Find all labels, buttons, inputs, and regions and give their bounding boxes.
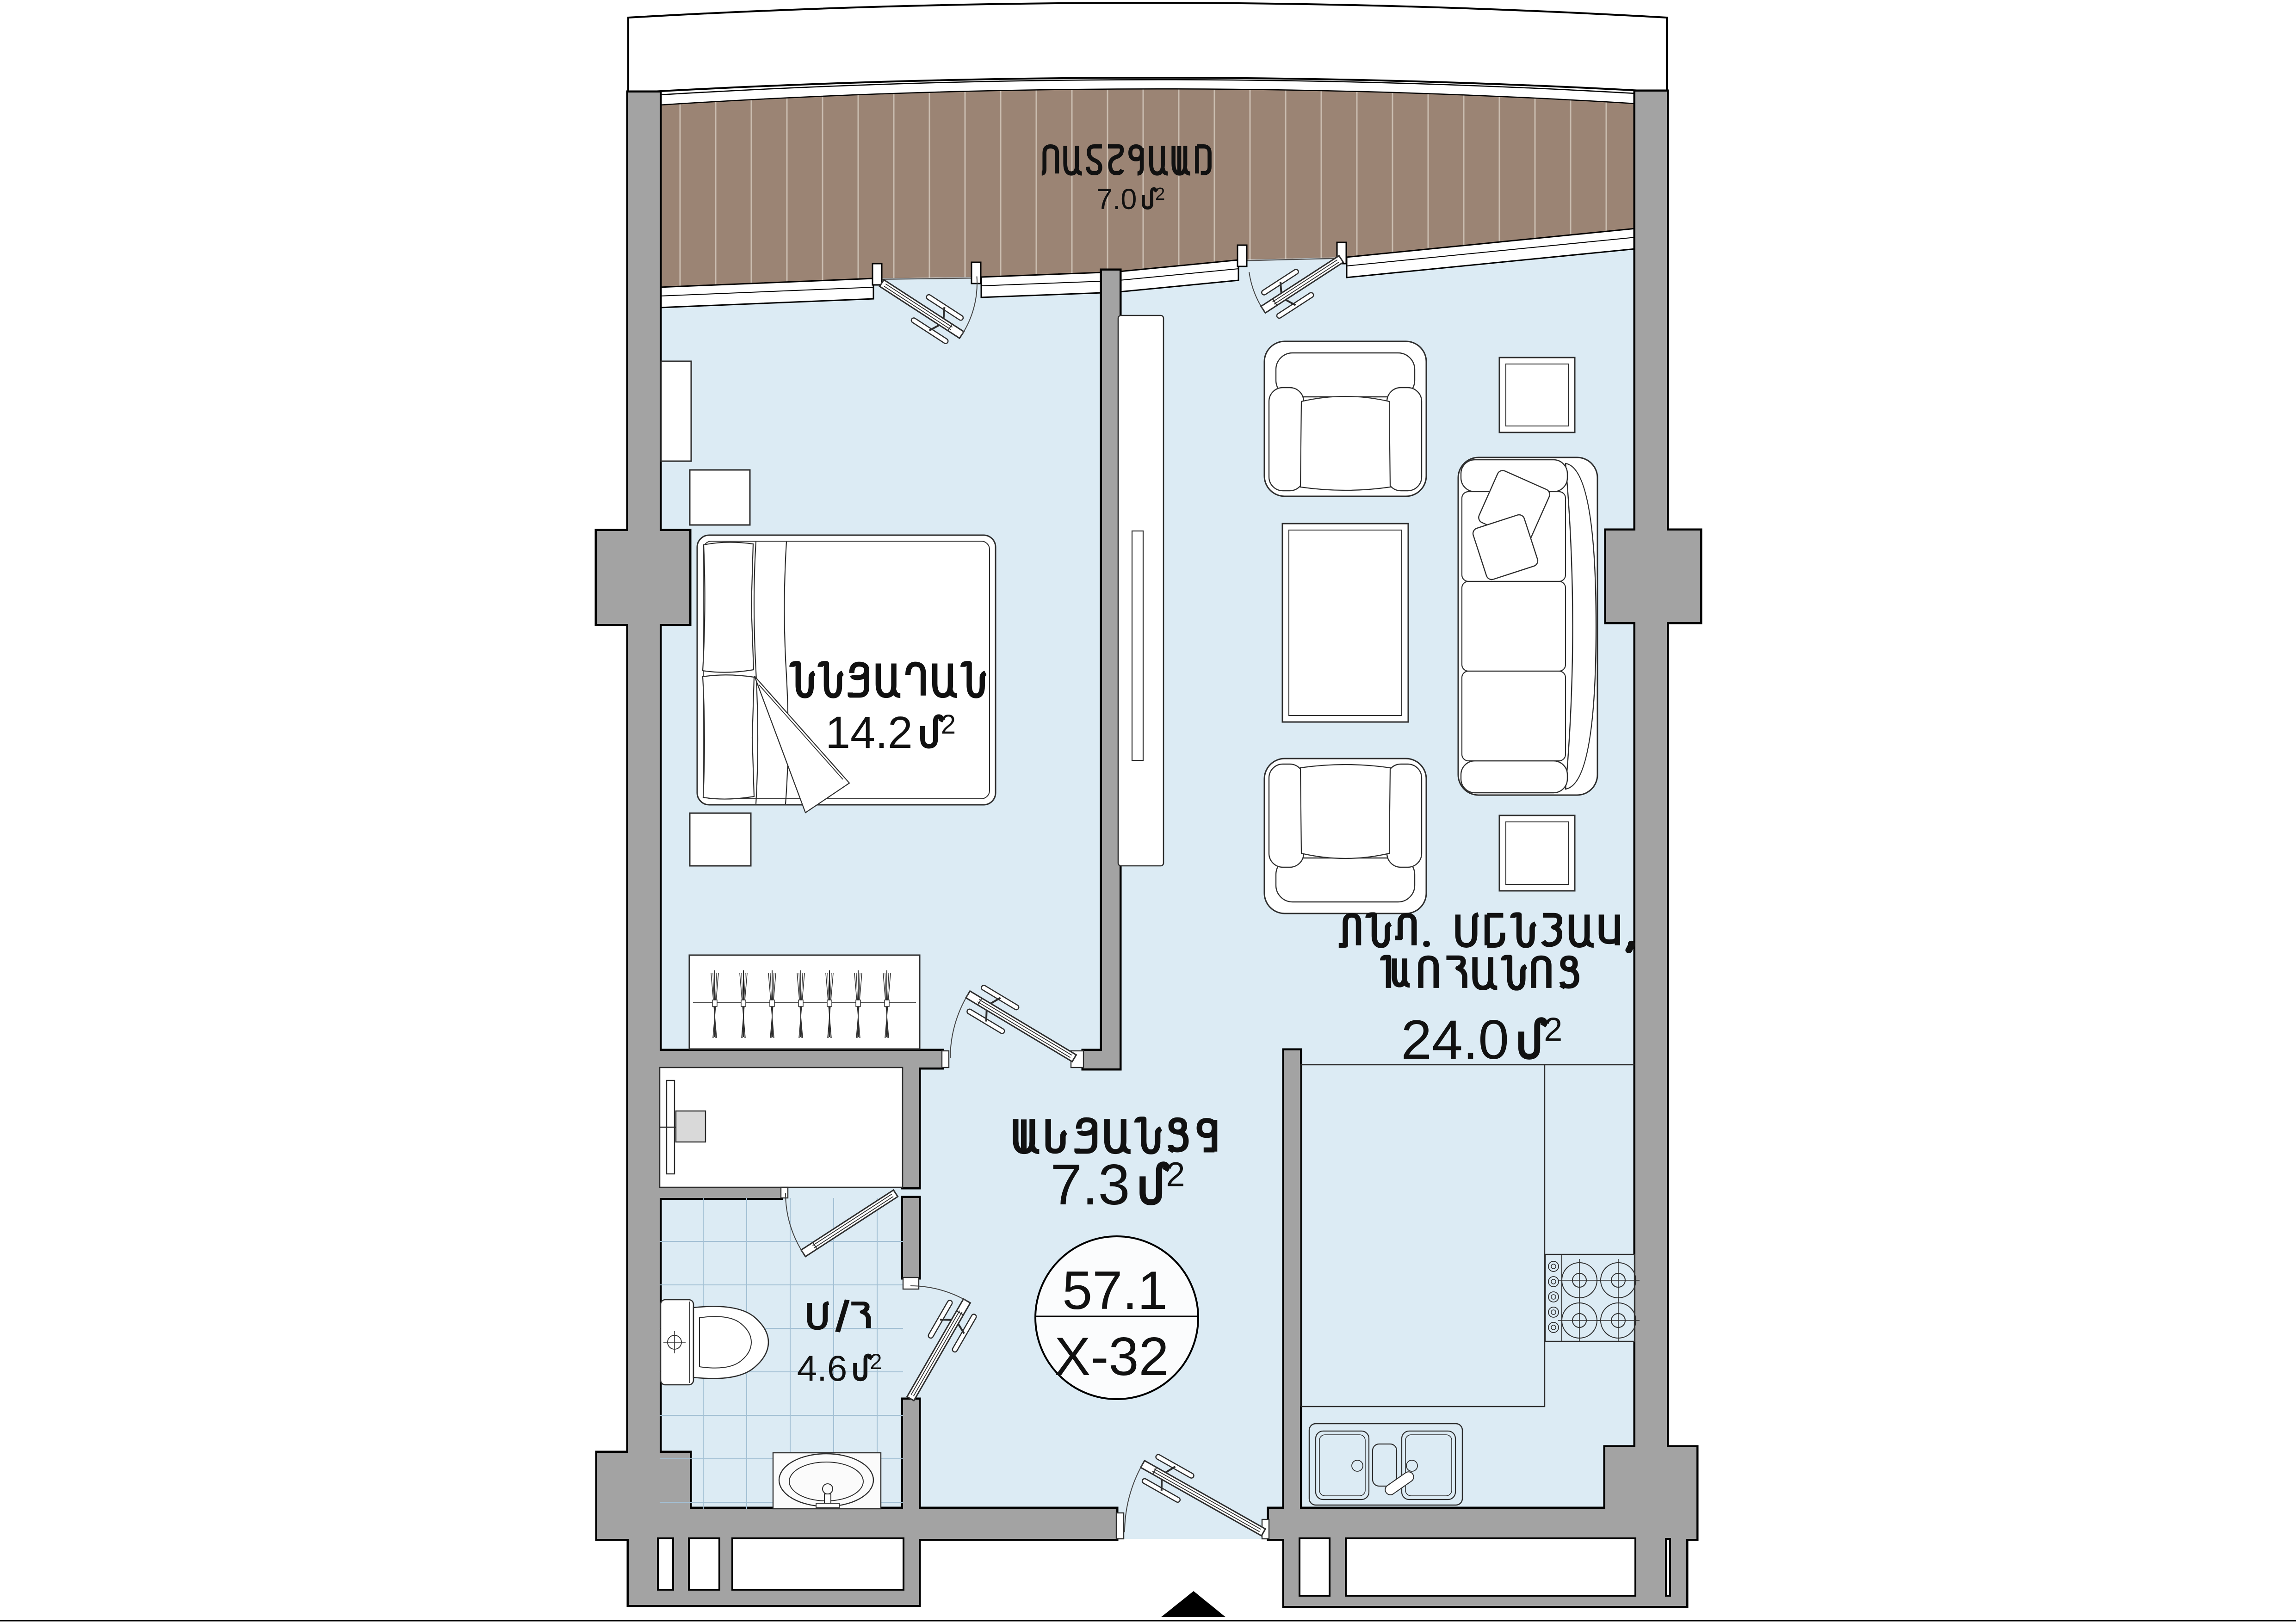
svg-text:14.2: 14.2 (825, 707, 913, 758)
svg-text:24.0: 24.0 (1401, 1009, 1509, 1071)
svg-text:2: 2 (870, 1349, 882, 1374)
svg-text:2: 2 (1166, 1155, 1185, 1193)
svg-text:2: 2 (1155, 185, 1165, 204)
svg-text:7.3: 7.3 (1050, 1153, 1130, 1217)
svg-text:2: 2 (1544, 1012, 1562, 1049)
svg-text:57.1: 57.1 (1062, 1260, 1168, 1321)
svg-text:4.6: 4.6 (797, 1348, 847, 1388)
svg-text:2: 2 (941, 710, 956, 740)
svg-text:7.0: 7.0 (1096, 183, 1137, 216)
svg-text:X-32: X-32 (1054, 1326, 1169, 1387)
